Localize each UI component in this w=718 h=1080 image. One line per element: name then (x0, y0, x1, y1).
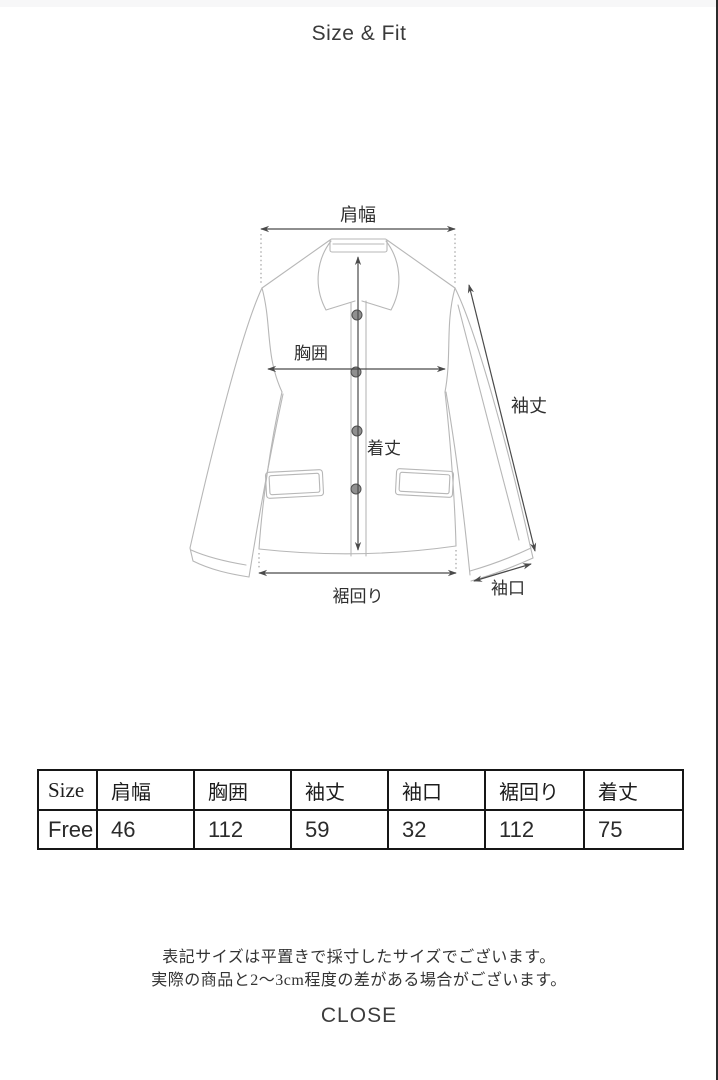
sleeve-length-arrow (469, 285, 535, 551)
page-title: Size & Fit (0, 22, 718, 46)
header-body-length: 着丈 (584, 770, 683, 810)
measurement-disclaimer: 表記サイズは平置きで採寸したサイズでございます。 実際の商品と2〜3cm程度の差… (0, 946, 718, 992)
cuff-label: 袖口 (491, 579, 525, 598)
cell-chest: 112 (194, 810, 291, 849)
jacket-measurement-diagram: 肩幅 胸囲 着丈 袖丈 袖口 裾回り (150, 195, 570, 625)
right-pocket-flap (395, 469, 453, 498)
jacket-outline (190, 239, 533, 581)
header-sleeve-length: 袖丈 (291, 770, 388, 810)
cell-cuff: 32 (388, 810, 485, 849)
cell-sleeve-length: 59 (291, 810, 388, 849)
hem-label: 裾回り (333, 587, 384, 606)
top-edge-strip (0, 0, 718, 7)
measurement-arrows (259, 229, 535, 581)
left-pocket-flap (265, 470, 323, 499)
body-length-label: 着丈 (367, 439, 401, 458)
shoulder-width-label: 肩幅 (340, 205, 376, 225)
cell-shoulder: 46 (97, 810, 194, 849)
jacket-buttons (351, 310, 362, 494)
cell-hem: 112 (485, 810, 584, 849)
sleeve-length-label: 袖丈 (511, 396, 547, 416)
disclaimer-line-1: 表記サイズは平置きで採寸したサイズでございます。 (0, 946, 718, 969)
header-chest: 胸囲 (194, 770, 291, 810)
collar-band (330, 239, 387, 252)
close-button[interactable]: CLOSE (0, 1004, 718, 1028)
header-hem: 裾回り (485, 770, 584, 810)
size-table-row-free: Free 46 112 59 32 112 75 (38, 810, 683, 849)
cell-size: Free (38, 810, 97, 849)
size-table: Size 肩幅 胸囲 袖丈 袖口 裾回り 着丈 Free 46 112 59 3… (37, 769, 684, 850)
size-fit-page: Size & Fit (0, 0, 718, 1080)
header-cuff: 袖口 (388, 770, 485, 810)
cell-body-length: 75 (584, 810, 683, 849)
chest-label: 胸囲 (294, 344, 328, 363)
size-table-header-row: Size 肩幅 胸囲 袖丈 袖口 裾回り 着丈 (38, 770, 683, 810)
header-shoulder: 肩幅 (97, 770, 194, 810)
disclaimer-line-2: 実際の商品と2〜3cm程度の差がある場合がございます。 (0, 969, 718, 992)
header-size: Size (38, 770, 97, 810)
